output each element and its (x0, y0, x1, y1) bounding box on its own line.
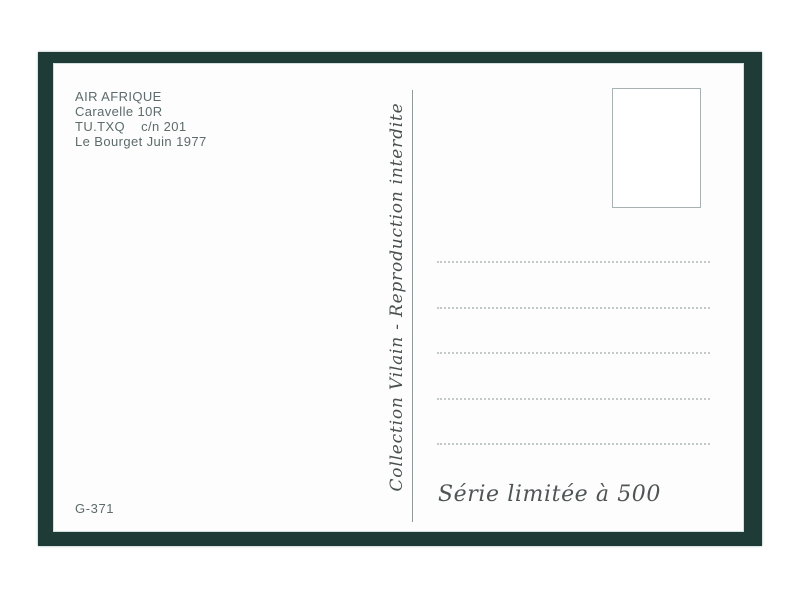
caption-line-aircraft: Caravelle 10R (75, 104, 207, 119)
address-line (437, 398, 710, 402)
caption-line-location-date: Le Bourget Juin 1977 (75, 134, 207, 149)
caption-block: AIR AFRIQUE Caravelle 10R TU.TXQ c/n 201… (75, 89, 207, 149)
address-line (437, 443, 710, 447)
address-lines (437, 261, 710, 447)
postcard-back: AIR AFRIQUE Caravelle 10R TU.TXQ c/n 201… (53, 63, 744, 532)
series-note: Série limitée à 500 (438, 482, 661, 507)
center-divider-line (412, 90, 413, 522)
address-line (437, 307, 710, 311)
caption-line-registration: TU.TXQ c/n 201 (75, 119, 207, 134)
reference-number: G-371 (75, 501, 114, 516)
caption-line-airline: AIR AFRIQUE (75, 89, 207, 104)
scan-background: AIR AFRIQUE Caravelle 10R TU.TXQ c/n 201… (0, 0, 800, 600)
address-line (437, 352, 710, 356)
address-line (437, 261, 710, 265)
collection-credit-text: Collection Vilain - Reproduction interdi… (387, 102, 407, 491)
postcard-frame: AIR AFRIQUE Caravelle 10R TU.TXQ c/n 201… (38, 52, 762, 546)
stamp-box (612, 88, 701, 208)
